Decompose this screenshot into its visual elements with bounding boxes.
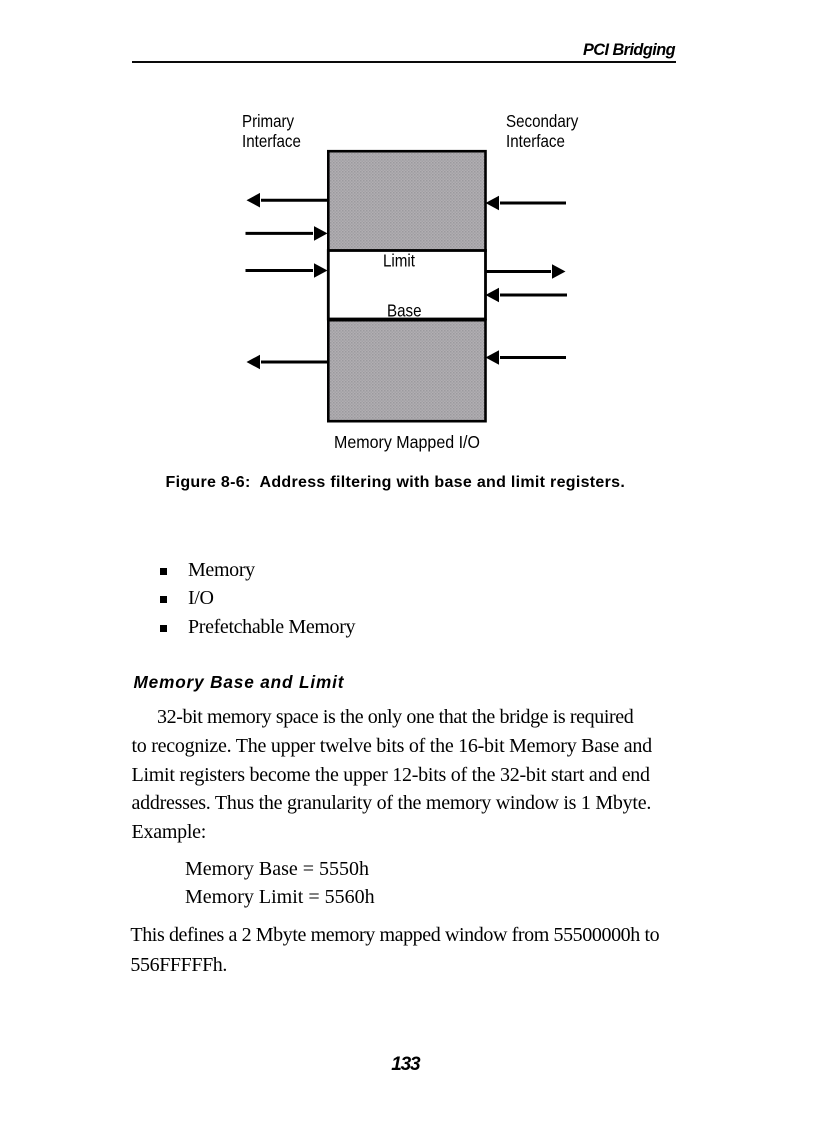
- svg-text:Base: Base: [387, 301, 422, 321]
- svg-text:Limit: Limit: [383, 250, 415, 270]
